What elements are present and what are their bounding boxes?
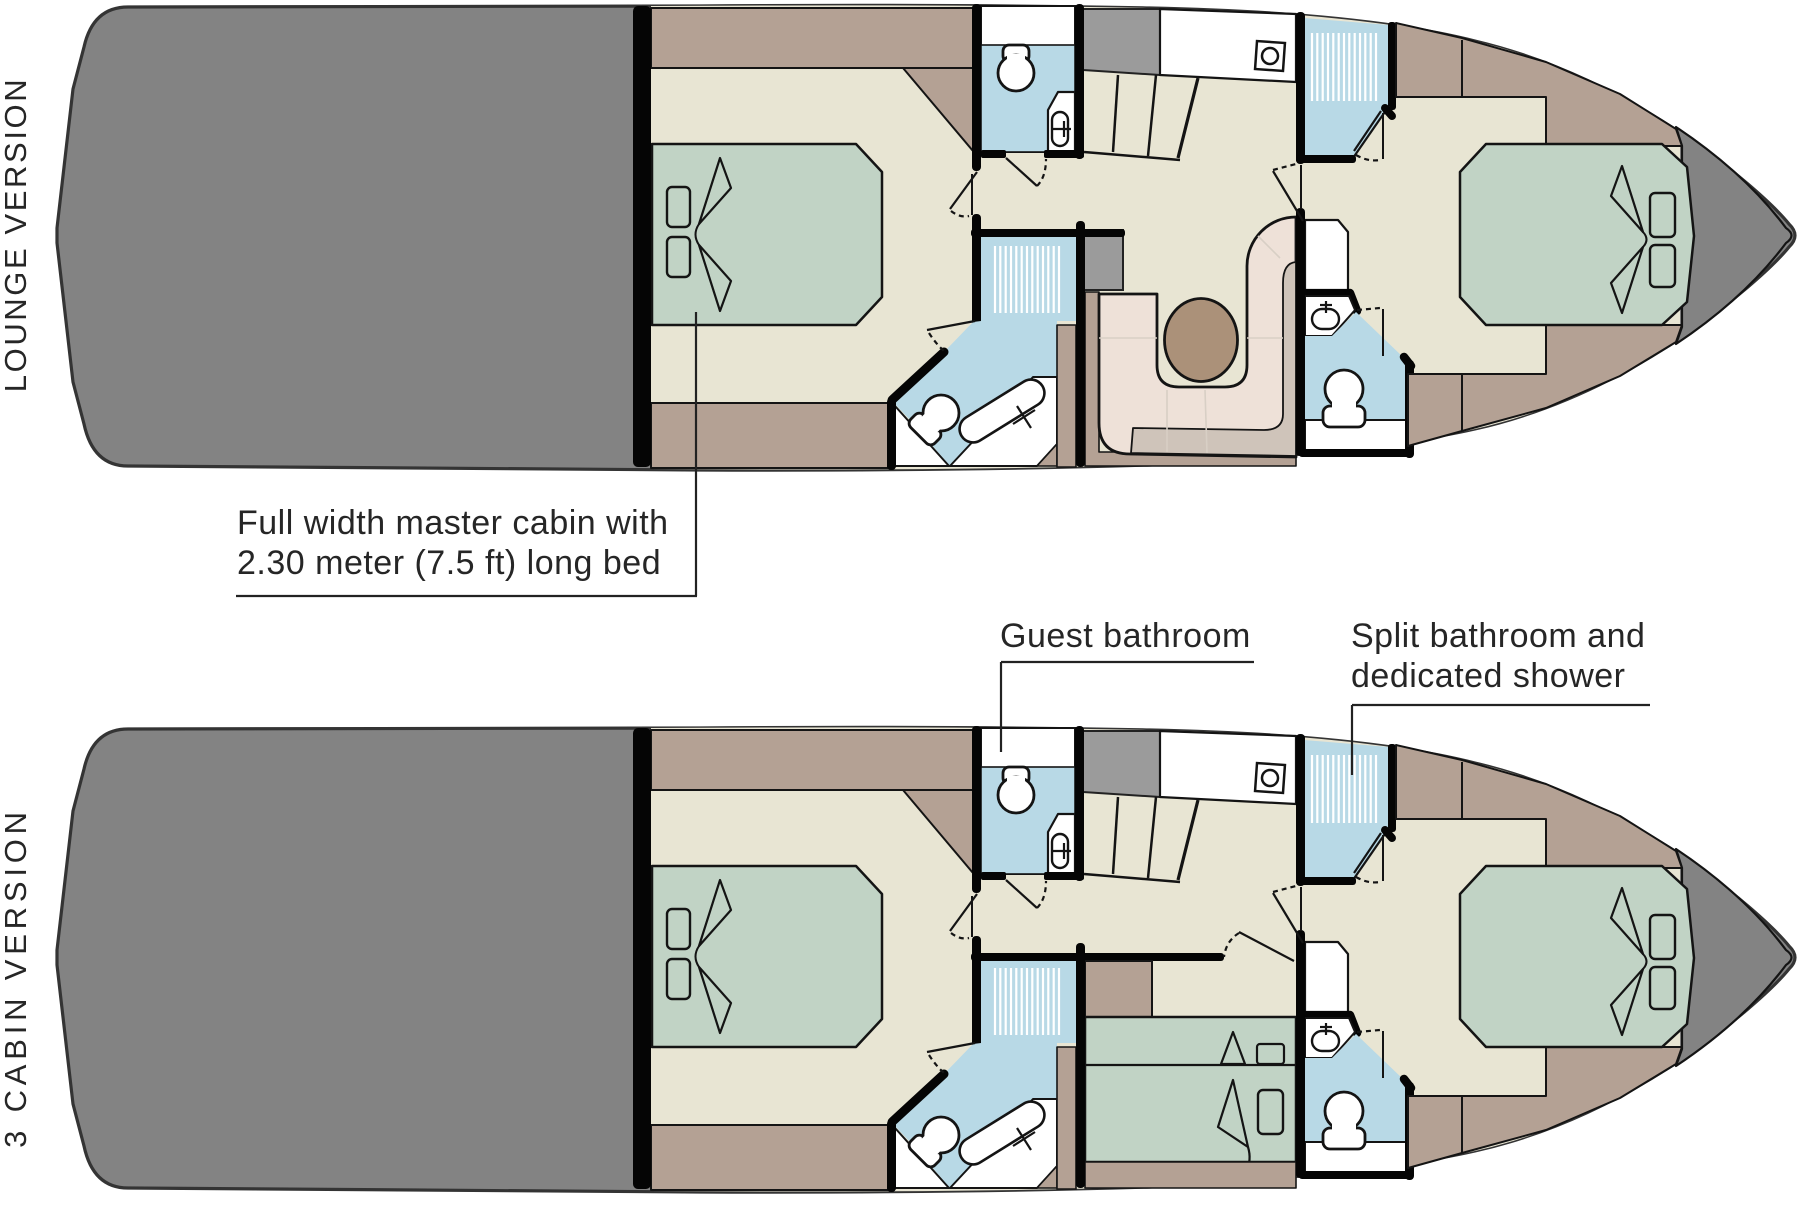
svg-text:2.30 meter (7.5 ft) long bed: 2.30 meter (7.5 ft) long bed: [237, 544, 661, 582]
svg-text:3 CABIN VERSION: 3 CABIN VERSION: [0, 807, 33, 1148]
svg-text:Split bathroom and: Split bathroom and: [1351, 617, 1645, 655]
svg-text:LOUNGE VERSION: LOUNGE VERSION: [0, 77, 33, 392]
svg-text:Guest bathroom: Guest bathroom: [1000, 617, 1251, 655]
svg-text:dedicated shower: dedicated shower: [1351, 657, 1626, 695]
svg-text:Full width master cabin with: Full width master cabin with: [237, 504, 669, 542]
